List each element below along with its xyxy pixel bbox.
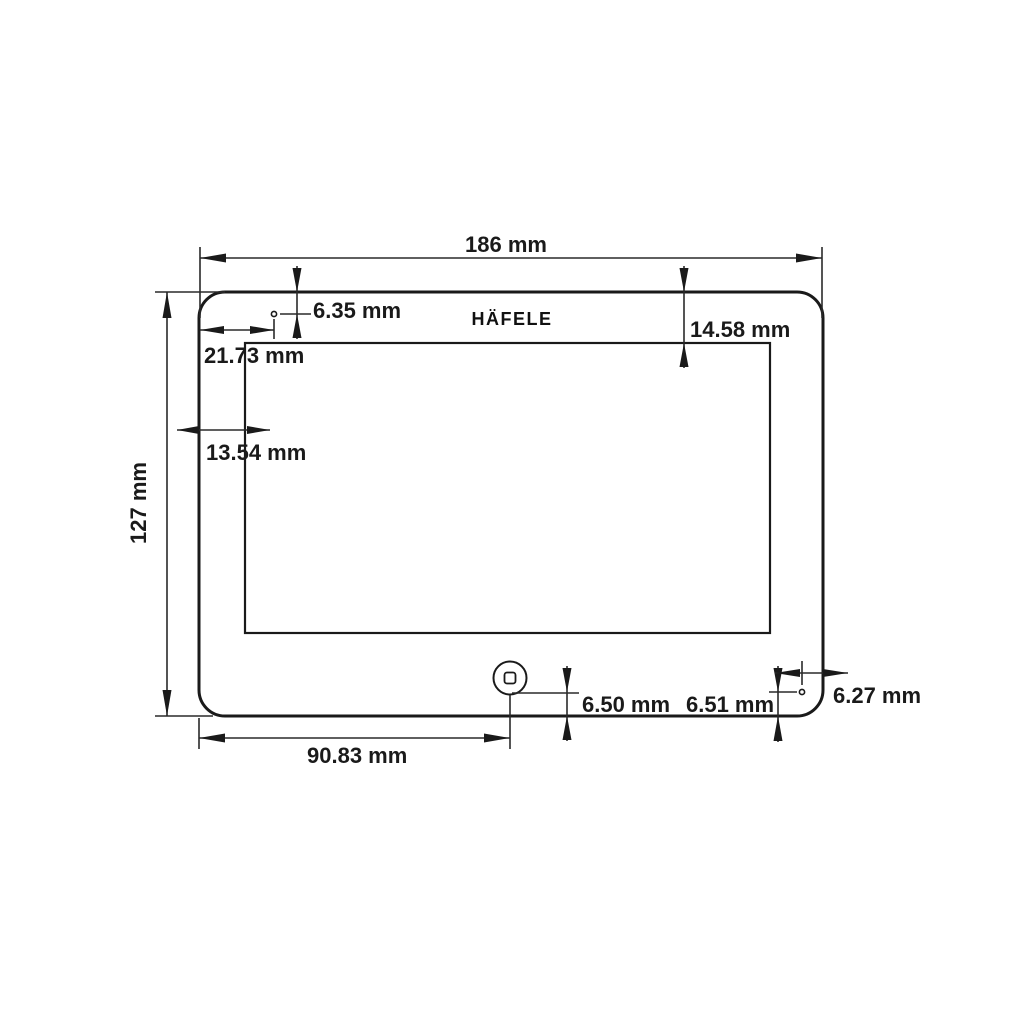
dim-label-mic-from-bottom: 6.51 mm	[686, 692, 774, 717]
dim-overall-width: 186 mm	[200, 232, 822, 318]
dim-label-mic-from-right: 6.27 mm	[833, 683, 921, 708]
arrowhead-right-icon	[823, 669, 848, 677]
drawing-canvas: HÄFELE 186 mm 127 mm 6.35 mm 21.7	[0, 0, 1024, 1024]
dim-label-home-button-from-bottom: 6.50 mm	[582, 692, 670, 717]
arrowhead-down-icon	[680, 268, 689, 292]
brand-logo: HÄFELE	[472, 309, 553, 329]
dim-label-hole-left-offset: 21.73 mm	[204, 343, 304, 368]
dimension-drawing: HÄFELE 186 mm 127 mm 6.35 mm 21.7	[0, 0, 1024, 1024]
arrowhead-right-icon	[796, 254, 822, 263]
arrowhead-left-icon	[199, 734, 225, 743]
arrowhead-right-icon	[250, 326, 274, 334]
arrowhead-up-icon	[293, 314, 302, 338]
screen-rect	[245, 343, 770, 633]
arrowhead-left-icon	[177, 426, 199, 434]
home-button	[494, 662, 527, 695]
dim-hole-left-offset: 21.73 mm	[200, 319, 304, 368]
arrowhead-up-icon	[774, 716, 783, 741]
sensor-hole	[271, 311, 276, 316]
dim-label-home-button-from-left: 90.83 mm	[307, 743, 407, 768]
dim-label-screen-margin-left: 13.54 mm	[206, 440, 306, 465]
dim-hole-top-offset: 6.35 mm	[280, 266, 401, 339]
dim-label-overall-width: 186 mm	[465, 232, 547, 257]
arrowhead-left-icon	[200, 254, 226, 263]
dim-mic-from-right: 6.27 mm	[775, 661, 921, 708]
arrowhead-up-icon	[563, 716, 572, 740]
dim-label-screen-margin-top: 14.58 mm	[690, 317, 790, 342]
dim-screen-margin-top: 14.58 mm	[680, 266, 791, 368]
arrowhead-down-icon	[774, 668, 783, 692]
arrowhead-left-icon	[200, 326, 224, 334]
arrowhead-right-icon	[484, 734, 510, 743]
arrowhead-up-icon	[680, 343, 689, 367]
arrowhead-down-icon	[293, 268, 302, 292]
arrowhead-right-icon	[247, 426, 270, 434]
arrowhead-down-icon	[163, 690, 172, 716]
dim-label-hole-top-offset: 6.35 mm	[313, 298, 401, 323]
dim-mic-from-bottom: 6.51 mm	[686, 666, 797, 742]
home-button-square-icon	[505, 673, 516, 684]
mic-hole	[799, 689, 804, 694]
dim-label-overall-height: 127 mm	[126, 462, 151, 544]
dim-screen-margin-left: 13.54 mm	[177, 426, 306, 465]
dim-home-button-from-left: 90.83 mm	[199, 695, 510, 768]
arrowhead-up-icon	[163, 292, 172, 318]
dim-home-button-from-bottom: 6.50 mm	[512, 666, 670, 741]
arrowhead-down-icon	[563, 668, 572, 692]
